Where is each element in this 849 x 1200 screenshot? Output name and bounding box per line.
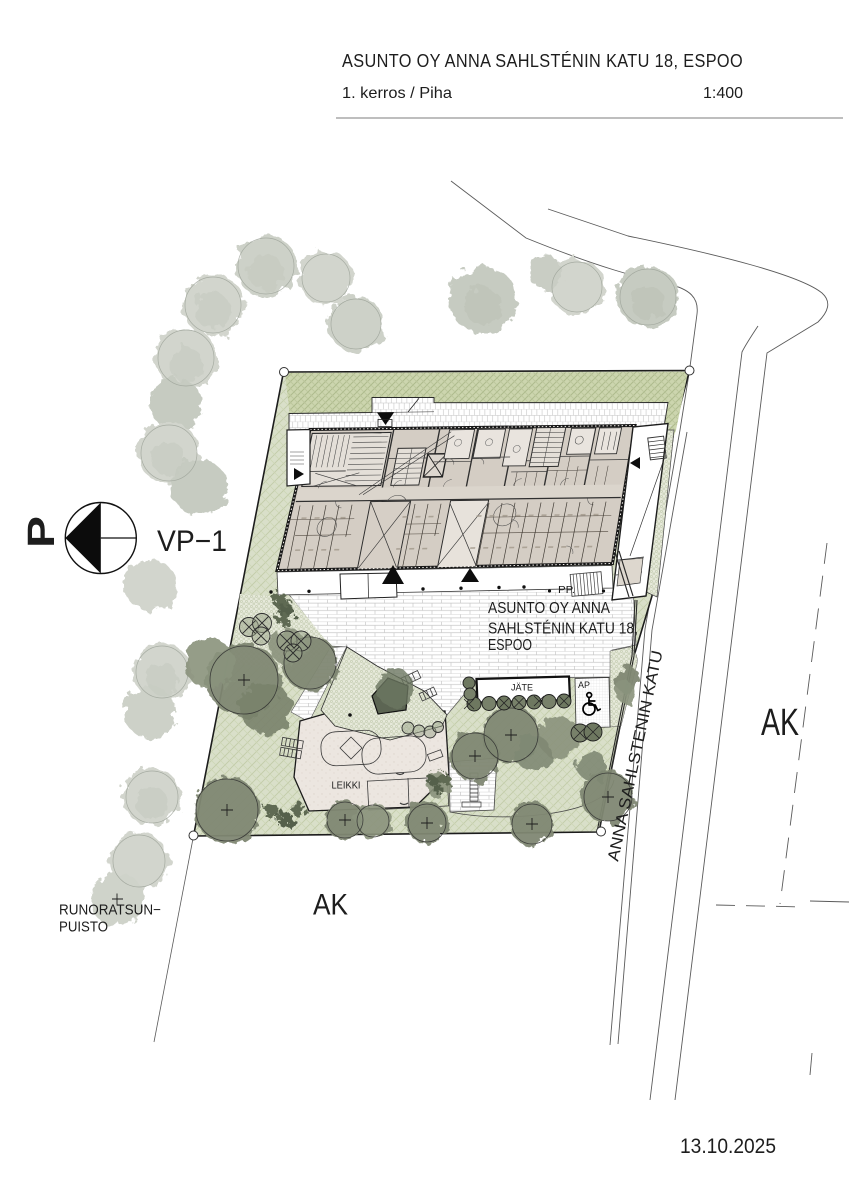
svg-text:P: P [21,516,63,548]
svg-text:RUNORATSUN−: RUNORATSUN− [59,903,161,919]
svg-text:JÄTE: JÄTE [511,683,533,694]
svg-text:AP: AP [578,680,590,690]
svg-text:AK: AK [761,702,799,744]
svg-text:SAHLSTÉNIN KATU 18,: SAHLSTÉNIN KATU 18, [488,619,638,638]
svg-text:13.10.2025: 13.10.2025 [680,1135,776,1158]
svg-text:ESPOO: ESPOO [488,637,532,654]
svg-text:AK: AK [313,889,348,922]
svg-text:ASUNTO OY ANNA: ASUNTO OY ANNA [488,600,610,617]
svg-text:1:400: 1:400 [703,85,743,102]
svg-text:PP.: PP. [558,584,575,596]
svg-text:PUISTO: PUISTO [59,920,108,936]
svg-text:LEIKKI: LEIKKI [332,781,361,792]
svg-text:VP−1: VP−1 [157,525,227,558]
svg-text:1. kerros / Piha: 1. kerros / Piha [342,85,452,102]
svg-text:ASUNTO OY ANNA SAHLSTÉNIN KATU: ASUNTO OY ANNA SAHLSTÉNIN KATU 18, ESPOO [342,51,743,71]
